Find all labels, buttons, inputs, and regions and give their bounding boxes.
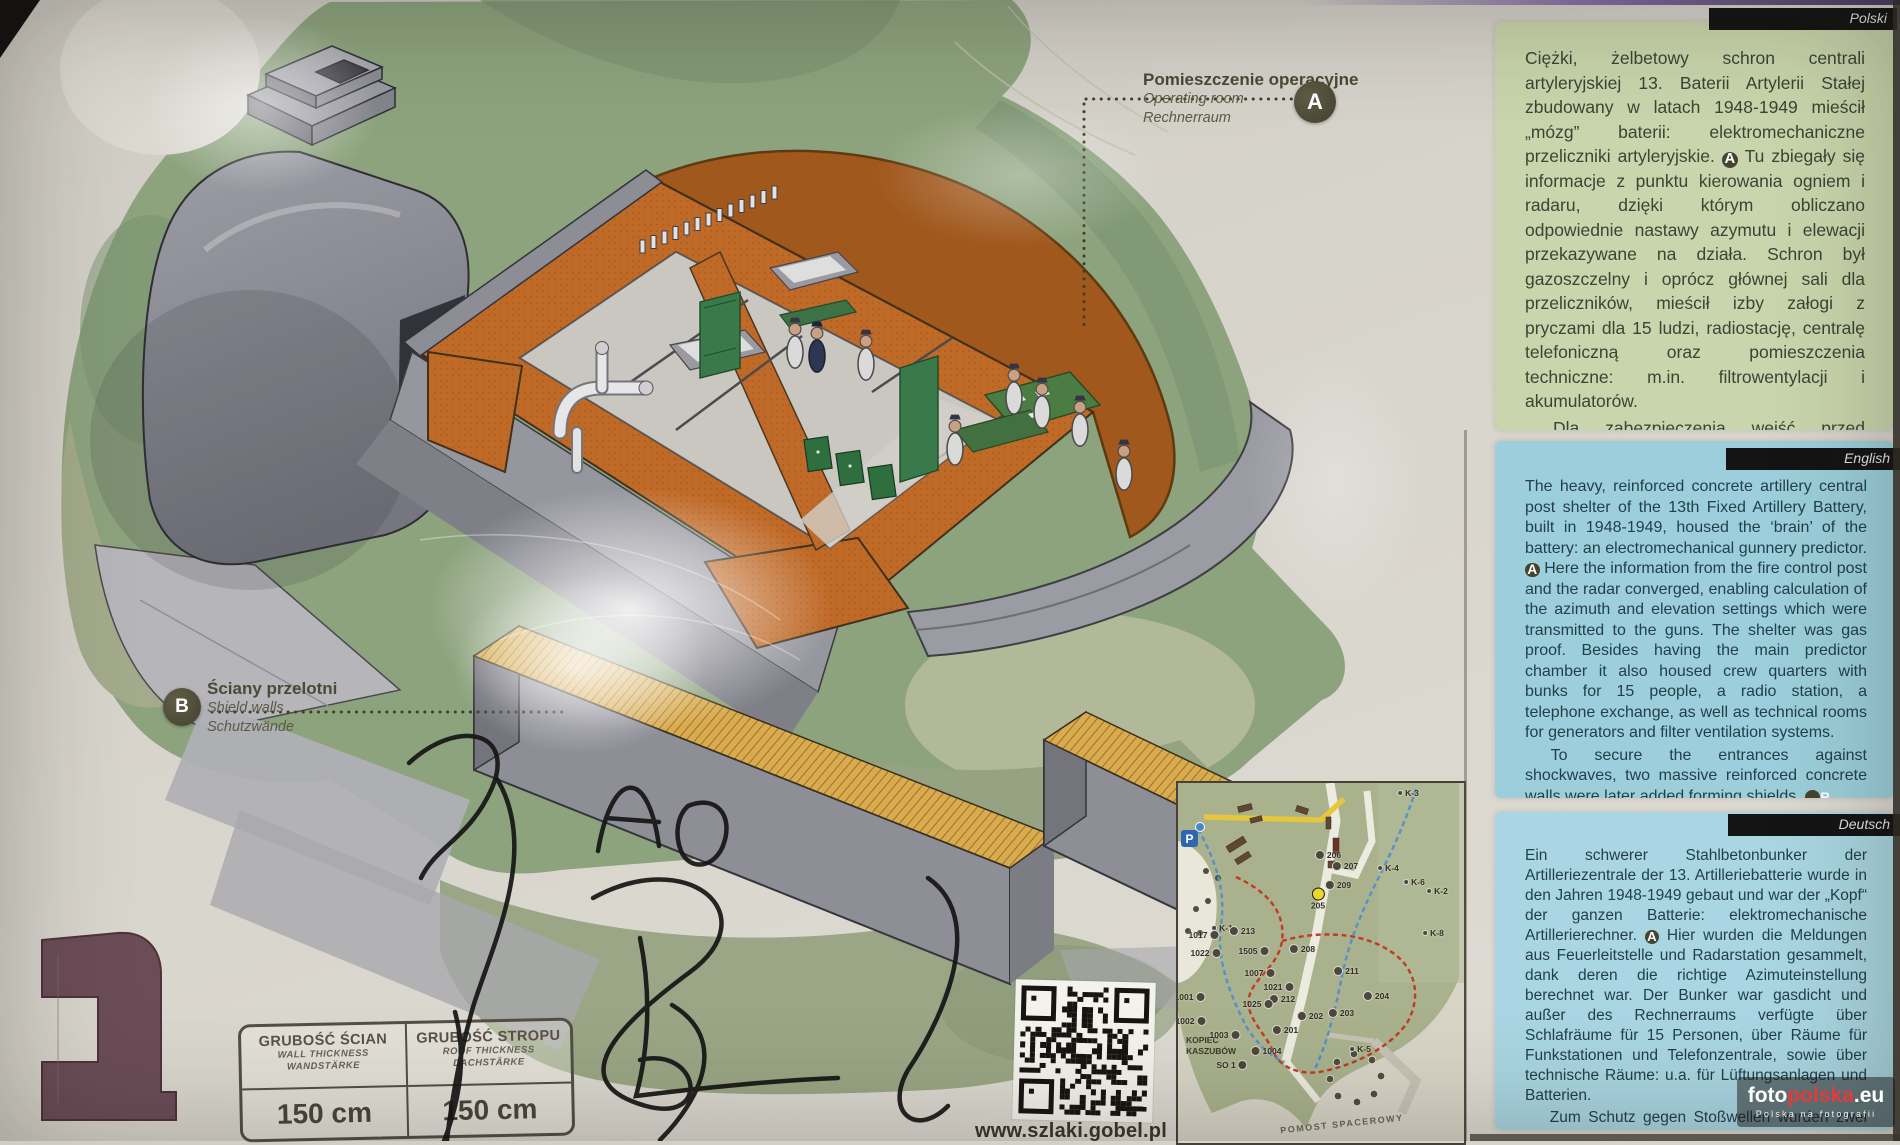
map-point-label: 1505	[1239, 946, 1258, 956]
map-point-dot	[1297, 1011, 1307, 1021]
panel-paragraph: Dla zabezpieczenia wejść przed działanie…	[1525, 416, 1865, 431]
map-point-so-1: SO 1	[1216, 1060, 1247, 1070]
map-point-k-3: K-3	[1397, 788, 1419, 798]
map-point-label: 212	[1281, 994, 1295, 1004]
panel-polish-text: Ciężki, żelbetowy schron centrali artyle…	[1495, 22, 1893, 430]
map-point-label: 1007	[1245, 968, 1264, 978]
map-point-dot	[1377, 865, 1383, 871]
map-point-label: 1022	[1191, 948, 1210, 958]
map-point-dot	[1422, 930, 1428, 936]
map-point-dot	[1263, 999, 1273, 1009]
map-point-dot	[1426, 888, 1432, 894]
callout-shield-walls-pl: Ściany przelotni	[207, 679, 337, 699]
map-point-label: 209	[1337, 880, 1351, 890]
panel-paragraph: The heavy, reinforced concrete artillery…	[1525, 477, 1867, 744]
map-point-label: 213	[1241, 926, 1255, 936]
wall-thickness-cell: GRUBOŚĆ ŚCIAN WALL THICKNESS WANDSTÄRKE …	[241, 1024, 407, 1139]
photo-edge-top	[1300, 0, 1900, 5]
map-point-201: 201	[1272, 1025, 1298, 1035]
photo-fold-line	[1464, 430, 1467, 1141]
map-point-dot	[1251, 1046, 1261, 1056]
panel-paragraph: Ein schwerer Stahlbetonbunker der Artill…	[1525, 846, 1867, 1106]
panel-polish-header: Polski	[1709, 8, 1897, 30]
site-map-inset: P KOPIEC KASZUBÓW POMOST SPACEROWY K-320…	[1176, 781, 1466, 1145]
map-point-k-6: K-6	[1403, 877, 1425, 887]
roof-thickness-cell: GRUBOŚĆ STROPU ROOF THICKNESS DACHSTÄRKE…	[404, 1021, 572, 1136]
map-point-label: 208	[1301, 944, 1315, 954]
callout-shield-walls-en: Shield walls	[207, 699, 337, 718]
map-point-label: K-8	[1430, 928, 1444, 938]
map-point-dot	[1265, 968, 1275, 978]
map-point-dot	[1325, 880, 1335, 890]
fotopolska-watermark: fotopolska.eu Polska na fotografii	[1737, 1077, 1895, 1127]
thickness-table: GRUBOŚĆ ŚCIAN WALL THICKNESS WANDSTÄRKE …	[238, 1018, 575, 1143]
map-point-label: K-3	[1405, 788, 1419, 798]
map-point-dot	[1315, 850, 1325, 860]
marker-badge-A: A	[1645, 930, 1659, 944]
photo-edge-bottom	[1470, 1134, 1900, 1141]
roof-thickness-value: 150 cm	[408, 1082, 573, 1136]
marker-b-badge: B	[163, 688, 201, 726]
map-point-label: 205	[1311, 901, 1325, 911]
map-point-dot	[1211, 948, 1221, 958]
panel-german-header: Deutsch	[1728, 814, 1900, 836]
marker-badge-B: B	[1805, 790, 1820, 798]
roof-thickness-pl: GRUBOŚĆ STROPU	[416, 1028, 560, 1047]
map-point-1007: 1007	[1245, 968, 1276, 978]
map-point-dot	[1349, 1046, 1355, 1052]
photo-edge-right	[1893, 0, 1900, 1141]
map-point-label: 1017	[1189, 930, 1208, 940]
map-point-label: 206	[1327, 850, 1341, 860]
map-point-dot	[1259, 946, 1269, 956]
map-point-label: 1002	[1176, 1016, 1194, 1026]
map-point-1505: 1505	[1239, 946, 1270, 956]
map-point-1001: 1001	[1176, 992, 1205, 1002]
wall-section-icon	[42, 933, 176, 1120]
map-point-dot	[1332, 861, 1342, 871]
map-point-label: SO 1	[1216, 1060, 1235, 1070]
map-point-label: 1001	[1176, 992, 1193, 1002]
map-point-dot	[1238, 1060, 1248, 1070]
map-point-1017: 1017	[1189, 930, 1220, 940]
map-point-label: K-6	[1411, 877, 1425, 887]
map-point-dot	[1328, 1008, 1338, 1018]
map-point-label: 202	[1309, 1011, 1323, 1021]
map-point-label: 1025	[1243, 999, 1262, 1009]
map-point-1021: 1021	[1264, 982, 1295, 992]
map-point-k-8: K-8	[1422, 928, 1444, 938]
map-point-211: 211	[1333, 966, 1359, 976]
map-point-dot	[1195, 992, 1205, 1002]
site-map-graphic	[1178, 783, 1464, 1143]
map-point-label: 211	[1345, 966, 1359, 976]
wall-thickness-de: WANDSTÄRKE	[259, 1060, 388, 1075]
map-point-203: 203	[1328, 1008, 1354, 1018]
marker-badge-A: A	[1722, 152, 1738, 168]
map-point-label: K-2	[1434, 886, 1448, 896]
map-point-dot	[1333, 966, 1343, 976]
map-point-dot	[1403, 879, 1409, 885]
callout-shield-walls: Ściany przelotni Shield walls Schutzwänd…	[207, 679, 337, 737]
qr-caption: www.szlaki.gobel.pl	[975, 1120, 1161, 1143]
fotopolska-logo: fotopolska.eu	[1748, 1085, 1885, 1106]
callout-shield-walls-de: Schutzwände	[207, 718, 337, 737]
map-point-label: 204	[1375, 991, 1389, 1001]
map-point-label: 1003	[1210, 1030, 1229, 1040]
marker-badge-A: A	[1525, 563, 1540, 578]
marker-a-badge: A	[1294, 81, 1336, 123]
map-point-206: 206	[1315, 850, 1341, 860]
map-point-dot	[1230, 1030, 1240, 1040]
map-point-dot	[1209, 930, 1219, 940]
map-point-label: 1021	[1264, 982, 1283, 992]
map-point-204: 204	[1363, 991, 1389, 1001]
map-point-205: 205	[1311, 888, 1325, 911]
map-point-dot	[1363, 991, 1373, 1001]
map-point-dot	[1289, 944, 1299, 954]
map-point-1002: 1002	[1176, 1016, 1206, 1026]
map-point-k-5: K-5	[1349, 1044, 1371, 1054]
panel-english: English The heavy, reinforced concrete a…	[1495, 441, 1893, 798]
map-point-dot	[1312, 888, 1325, 901]
map-point-207: 207	[1332, 861, 1358, 871]
parking-icon: P	[1181, 830, 1198, 847]
panel-polish: Polski Ciężki, żelbetowy schron centrali…	[1495, 22, 1893, 430]
map-point-dot	[1397, 790, 1403, 796]
qr-code	[1012, 979, 1156, 1123]
map-point-dot	[1284, 982, 1294, 992]
panel-english-header: English	[1726, 448, 1900, 470]
map-point-label: K-5	[1357, 1044, 1371, 1054]
map-point-k-2: K-2	[1426, 886, 1448, 896]
map-point-label: K-4	[1385, 863, 1399, 873]
map-point-208: 208	[1289, 944, 1315, 954]
map-point-dot	[1272, 1025, 1282, 1035]
map-point-1025: 1025	[1243, 999, 1274, 1009]
map-point-label: 1004	[1263, 1046, 1282, 1056]
information-board-photo: { "board": { "panels": [ { "lang": "Pols…	[0, 0, 1900, 1141]
map-point-dot	[1196, 1016, 1206, 1026]
map-point-213: 213	[1229, 926, 1255, 936]
fotopolska-subtitle: Polska na fotografii	[1756, 1109, 1877, 1119]
map-point-label: 207	[1344, 861, 1358, 871]
map-point-1004: 1004	[1251, 1046, 1282, 1056]
panel-paragraph: Ciężki, żelbetowy schron centrali artyle…	[1525, 46, 1865, 414]
wall-thickness-value: 150 cm	[242, 1085, 407, 1139]
map-point-dot	[1229, 926, 1239, 936]
map-point-label: 203	[1340, 1008, 1354, 1018]
map-point-209: 209	[1325, 880, 1351, 890]
panel-english-text: The heavy, reinforced concrete artillery…	[1495, 441, 1893, 798]
roof-thickness-de: DACHSTÄRKE	[417, 1056, 561, 1071]
map-point-202: 202	[1297, 1011, 1323, 1021]
map-point-label: 201	[1284, 1025, 1298, 1035]
map-point-1022: 1022	[1191, 948, 1222, 958]
map-point-k-4: K-4	[1377, 863, 1399, 873]
panel-paragraph: To secure the entrances against shockwav…	[1525, 746, 1867, 799]
map-point-1003: 1003	[1210, 1030, 1241, 1040]
